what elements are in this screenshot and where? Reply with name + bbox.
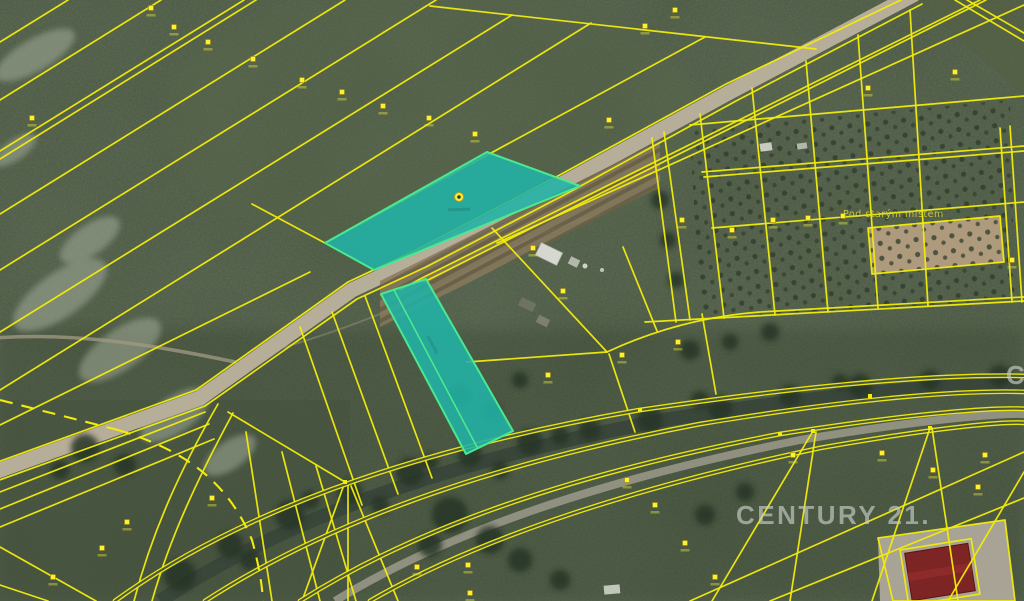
- watermark: CENTURY 21.: [736, 500, 931, 530]
- cadastral-map-canvas[interactable]: Pod starým místem CENTURY 21. C: [0, 0, 1024, 601]
- selected-parcel-marker[interactable]: [455, 193, 464, 202]
- cadastral-map-view: Pod starým místem CENTURY 21. C: [0, 0, 1024, 601]
- area-label: Pod starým místem: [843, 209, 944, 220]
- watermark-partial: C: [1006, 360, 1024, 390]
